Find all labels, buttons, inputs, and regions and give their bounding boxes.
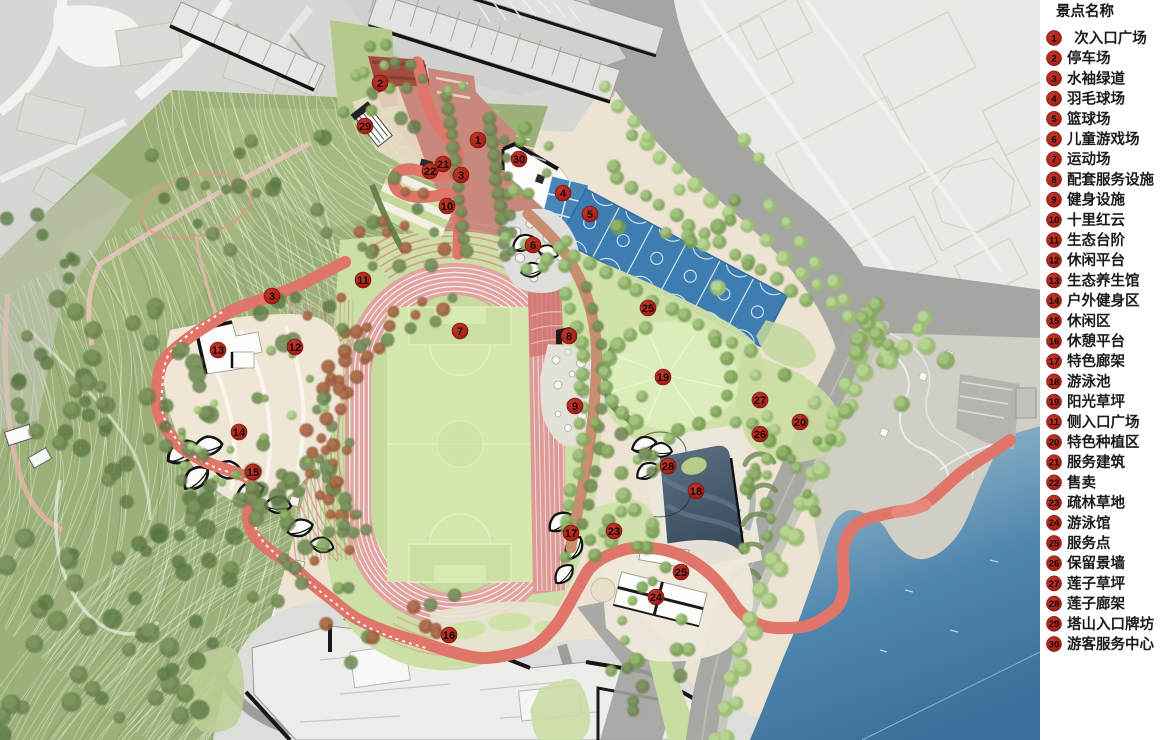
svg-text:22: 22 [424,166,436,178]
svg-text:21: 21 [437,159,449,171]
svg-text:27: 27 [1049,579,1060,590]
svg-text:特色廊架: 特色廊架 [1067,352,1125,370]
svg-text:25: 25 [642,303,654,315]
svg-text:4: 4 [1051,94,1057,105]
svg-text:5: 5 [1051,114,1057,125]
svg-text:20: 20 [1049,437,1060,448]
svg-text:莲子廊架: 莲子廊架 [1067,595,1125,613]
svg-text:游泳池: 游泳池 [1067,372,1111,390]
svg-text:11: 11 [357,275,369,287]
svg-text:6: 6 [1051,134,1056,145]
svg-text:5: 5 [587,209,593,221]
svg-text:4: 4 [560,188,567,200]
svg-text:儿童游戏场: 儿童游戏场 [1066,130,1140,148]
svg-text:28: 28 [1049,599,1060,610]
svg-text:8: 8 [566,331,572,343]
svg-text:18: 18 [1049,377,1060,388]
svg-text:29: 29 [359,121,371,133]
svg-text:3: 3 [458,170,464,182]
svg-text:6: 6 [530,240,536,252]
svg-text:11: 11 [1049,417,1060,428]
svg-text:30: 30 [513,154,525,166]
svg-text:疏林草地: 疏林草地 [1067,494,1125,512]
svg-text:停车场: 停车场 [1067,49,1111,67]
svg-text:健身设施: 健身设施 [1067,191,1125,209]
svg-text:保留景墙: 保留景墙 [1066,554,1125,572]
svg-text:塔山入口牌坊: 塔山入口牌坊 [1067,615,1154,633]
svg-text:售卖: 售卖 [1067,473,1096,491]
svg-text:户外健身区: 户外健身区 [1067,292,1140,310]
svg-text:27: 27 [754,395,766,407]
svg-text:3: 3 [269,291,275,303]
svg-text:26: 26 [1049,559,1060,570]
svg-text:休闲区: 休闲区 [1066,312,1111,330]
svg-text:14: 14 [233,427,246,439]
svg-text:11: 11 [1049,235,1060,246]
svg-text:15: 15 [1049,316,1060,327]
svg-text:10: 10 [441,201,453,213]
svg-text:15: 15 [247,467,259,479]
svg-text:阳光草坪: 阳光草坪 [1067,393,1125,411]
svg-text:23: 23 [1049,498,1060,509]
svg-text:21: 21 [1049,458,1060,469]
svg-text:18: 18 [690,486,702,498]
svg-text:25: 25 [675,567,687,579]
svg-text:13: 13 [1049,276,1060,287]
svg-text:30: 30 [1049,639,1060,650]
svg-text:9: 9 [1051,195,1056,206]
svg-text:2: 2 [1051,54,1056,65]
svg-text:1: 1 [475,135,481,147]
svg-text:19: 19 [657,372,669,384]
svg-text:运动场: 运动场 [1067,150,1111,168]
svg-text:22: 22 [1049,478,1060,489]
svg-text:2: 2 [377,78,383,90]
svg-text:12: 12 [289,342,301,354]
svg-text:24: 24 [1049,518,1060,529]
svg-text:生态台阶: 生态台阶 [1067,231,1125,249]
svg-text:16: 16 [1049,336,1060,347]
svg-text:莲子草坪: 莲子草坪 [1067,574,1125,592]
svg-text:23: 23 [608,526,620,538]
svg-text:服务建筑: 服务建筑 [1067,453,1125,471]
svg-text:17: 17 [1049,357,1060,368]
svg-text:篮球场: 篮球场 [1066,110,1111,128]
svg-text:28: 28 [662,461,674,473]
svg-text:20: 20 [794,417,806,429]
svg-text:3: 3 [1051,74,1056,85]
svg-text:9: 9 [572,401,578,413]
svg-text:13: 13 [212,345,224,357]
svg-text:26: 26 [754,429,766,441]
svg-text:十里红云: 十里红云 [1067,211,1125,229]
svg-text:景点名称: 景点名称 [1056,2,1114,20]
svg-text:游泳馆: 游泳馆 [1067,514,1111,532]
svg-text:12: 12 [1049,256,1060,267]
svg-text:25: 25 [1049,538,1060,549]
svg-text:24: 24 [650,592,663,604]
svg-text:7: 7 [1051,155,1056,166]
svg-text:游客服务中心: 游客服务中心 [1067,635,1154,653]
svg-text:7: 7 [457,326,463,338]
svg-text:29: 29 [1049,619,1060,630]
svg-text:休闲平台: 休闲平台 [1066,251,1125,269]
svg-text:侧入口广场: 侧入口广场 [1067,413,1140,431]
svg-text:次入口广场: 次入口广场 [1067,29,1147,47]
svg-text:水袖绿道: 水袖绿道 [1067,69,1125,87]
svg-text:休憩平台: 休憩平台 [1066,332,1125,350]
svg-text:8: 8 [1051,175,1056,186]
svg-text:10: 10 [1049,215,1060,226]
svg-text:特色种植区: 特色种植区 [1067,433,1140,451]
svg-text:1: 1 [1051,33,1057,44]
svg-text:17: 17 [565,528,577,540]
svg-text:羽毛球场: 羽毛球场 [1067,90,1125,108]
svg-text:16: 16 [443,630,455,642]
svg-text:生态养生馆: 生态养生馆 [1067,271,1140,289]
svg-text:14: 14 [1049,296,1060,307]
svg-text:服务点: 服务点 [1067,534,1111,552]
svg-text:19: 19 [1049,397,1060,408]
svg-text:配套服务设施: 配套服务设施 [1067,170,1154,188]
